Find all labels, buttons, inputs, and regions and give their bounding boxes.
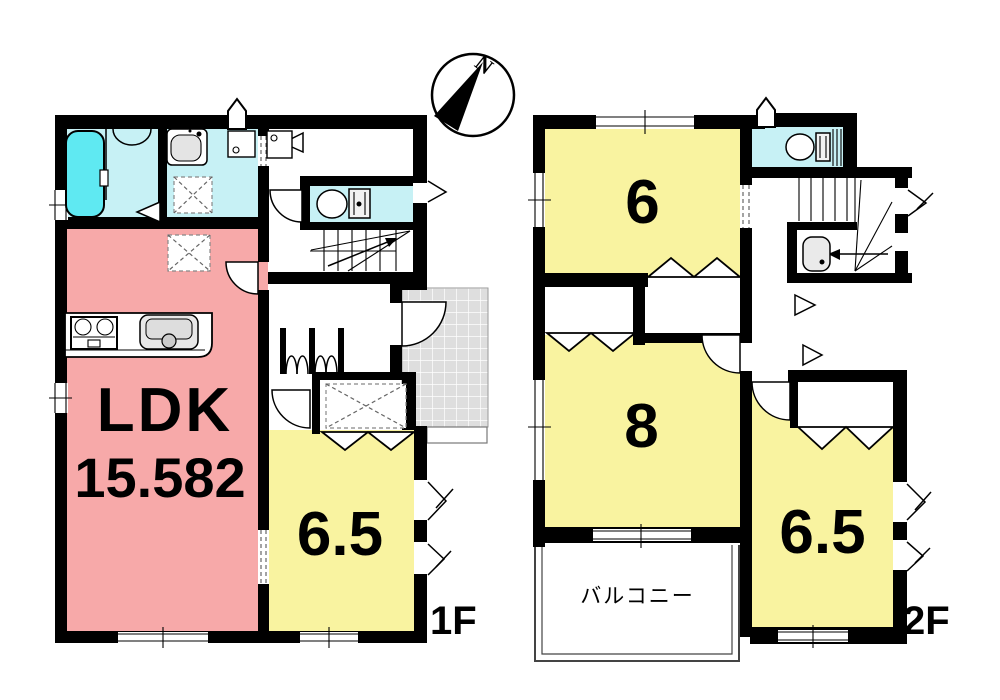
room8-label-2f: 8 [545, 396, 738, 458]
roof-vent-icon-2f [757, 98, 775, 127]
laundry-pan-icon [174, 177, 212, 213]
floor-plan-canvas: N LDK 15.582 6.5 1F 6 8 6.5 バルコニー 2F [0, 0, 1000, 700]
door-swing-mark-2f-a [795, 295, 815, 315]
room6-label-2f: 6 [545, 172, 740, 234]
refrigerator-space-icon [168, 235, 210, 271]
kitchen-sink-icon [140, 315, 198, 349]
stairs-icon-1f [310, 230, 410, 271]
washbasin-icon [167, 129, 207, 165]
room65-label-1f: 6.5 [264, 504, 416, 566]
washbasin-icon-2f [803, 237, 830, 271]
floor1-label: 1F [430, 601, 500, 641]
bathtub-icon [66, 131, 108, 217]
kitchen-stove-icon [71, 317, 117, 349]
ldk-area-label: 15.582 [53, 450, 267, 506]
room65-closet [798, 382, 893, 428]
door-swing-mark-2f-b [803, 345, 822, 365]
entrance-step [427, 427, 487, 443]
balcony-label: バルコニー [535, 586, 740, 607]
roof-vent-icon [228, 99, 246, 129]
toilet-door-arc [270, 190, 302, 222]
room65-door-arc-1f [272, 390, 310, 428]
room65-label-2f: 6.5 [752, 502, 893, 564]
floor2-label: 2F [903, 601, 973, 641]
floorplan-drawing [0, 0, 1000, 700]
ldk-room-label: LDK [62, 380, 268, 442]
kitchen-counter [65, 313, 212, 357]
entrance-closet-icon [326, 384, 406, 428]
